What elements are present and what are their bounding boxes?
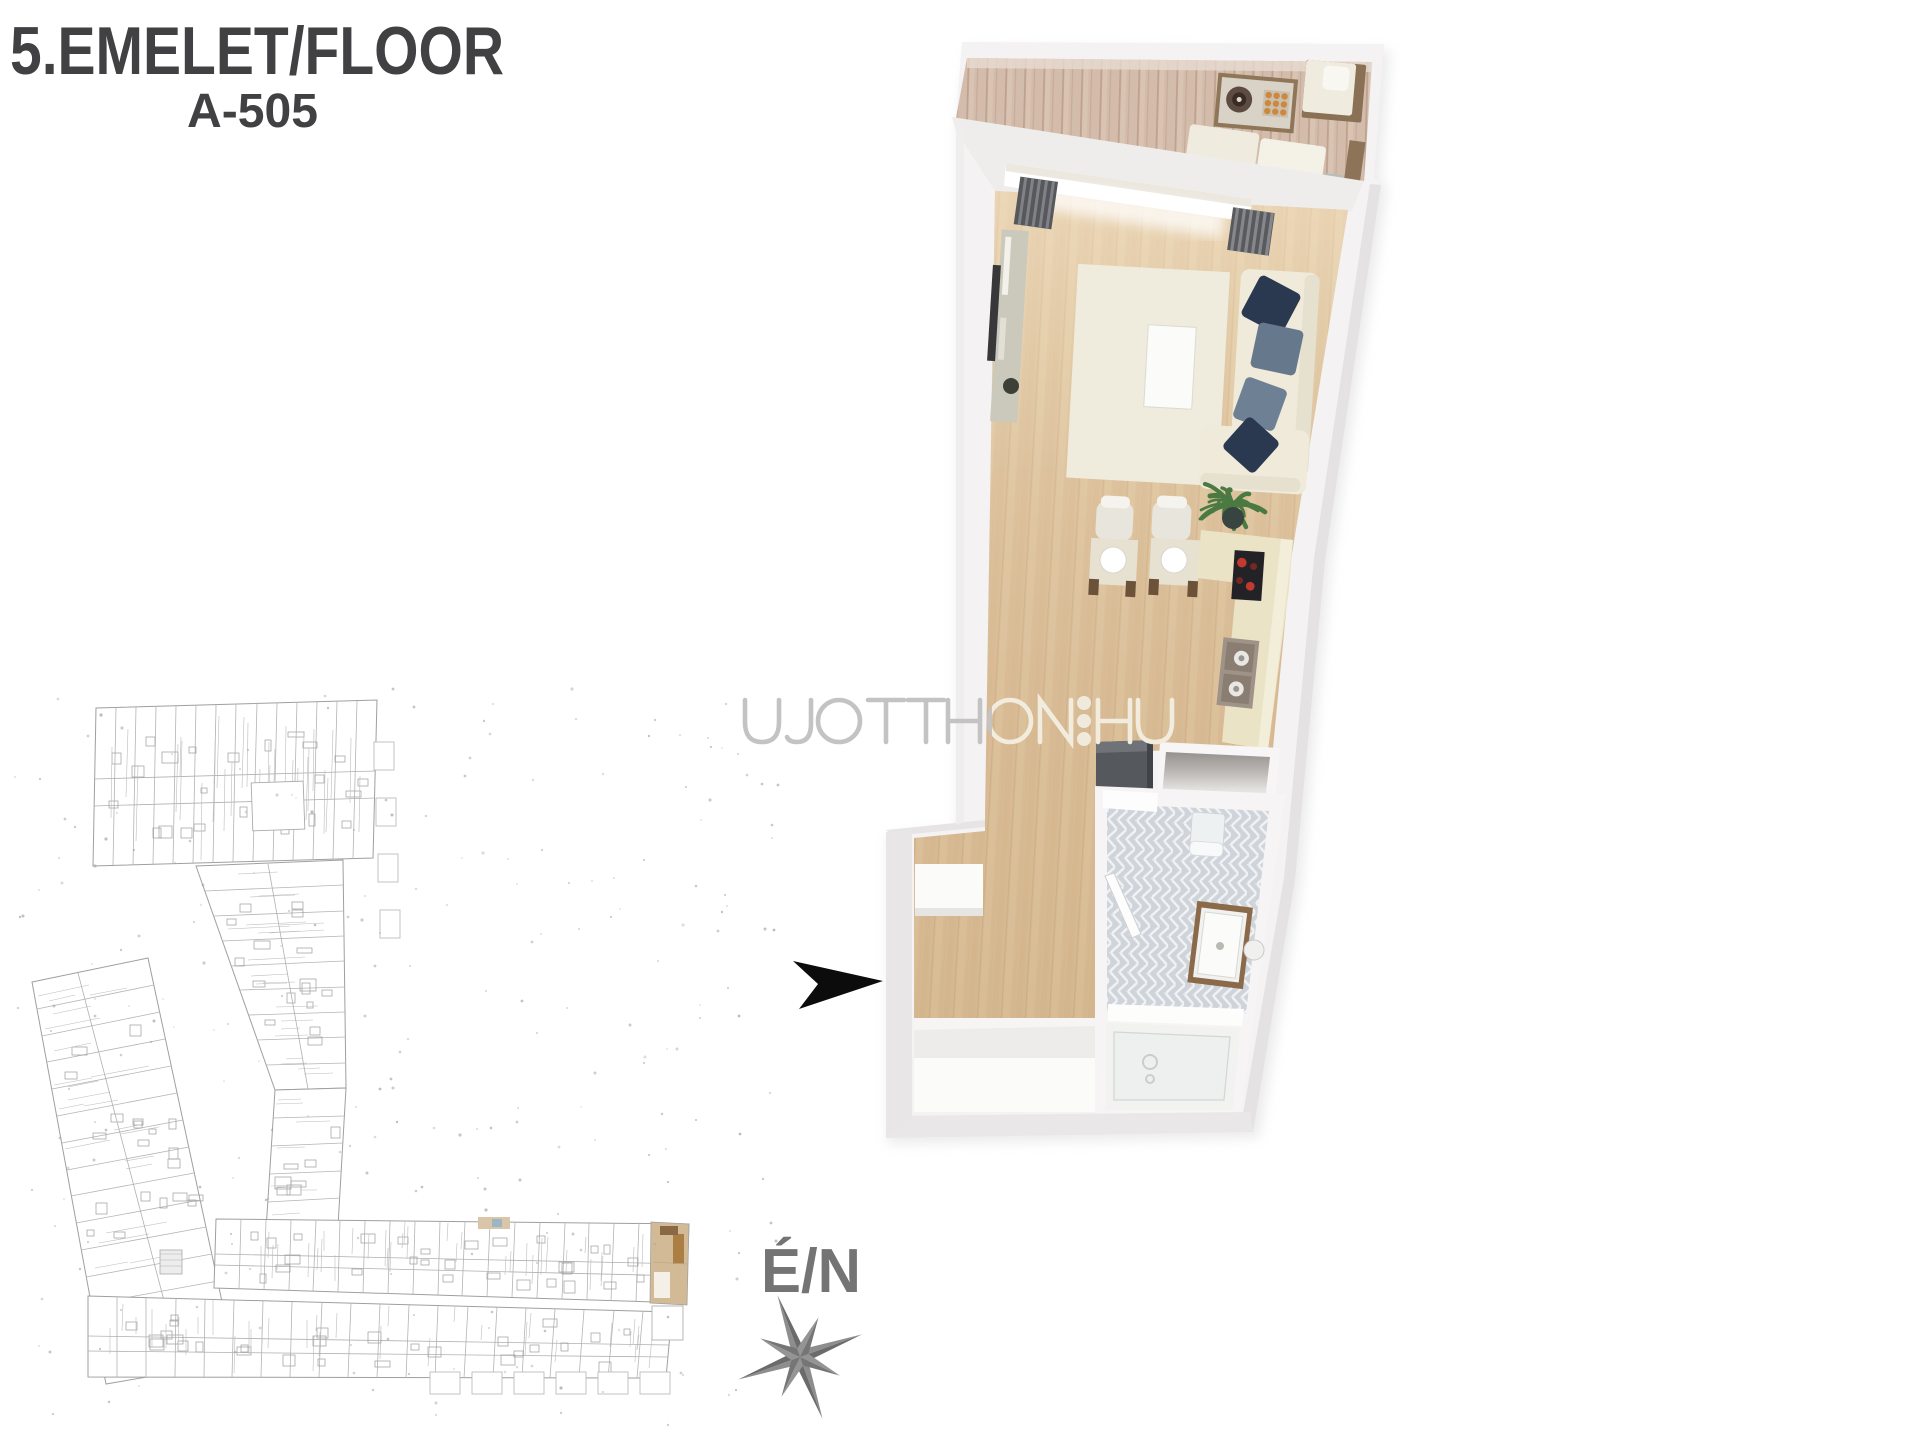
svg-text:É/N: É/N [761,1237,861,1306]
svg-text:5.EMELET/FLOOR: 5.EMELET/FLOOR [10,13,504,89]
svg-text:A-505: A-505 [187,85,318,138]
